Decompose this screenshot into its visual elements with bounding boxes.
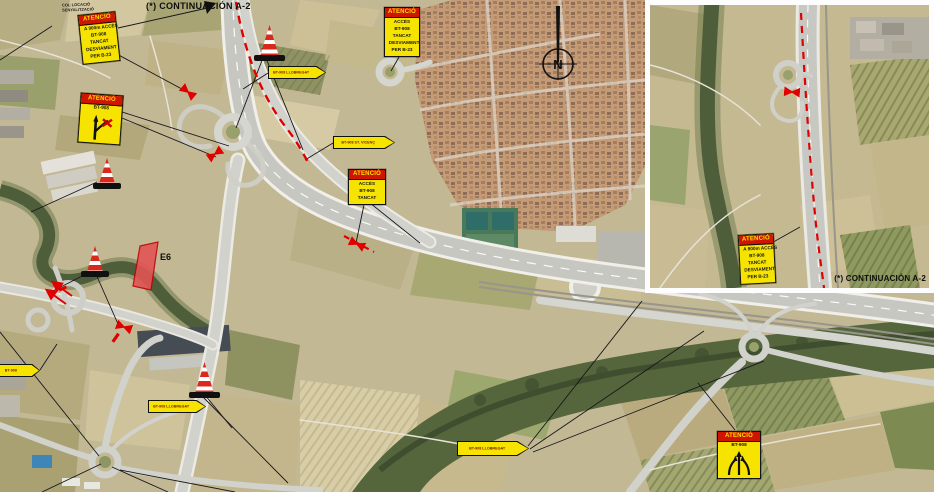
work-zone-e6-label: E6 xyxy=(160,252,171,262)
continuation-label-main: (*) CONTINUACIÓN A-2 xyxy=(146,1,251,11)
attention-header: ATENCIÓ xyxy=(385,8,419,18)
sign-line: DESVIAMENT xyxy=(389,41,416,46)
inset-canvas xyxy=(650,5,929,288)
traffic-cone xyxy=(257,25,282,58)
sign-line: A 900m ACCÉS xyxy=(743,246,770,253)
sign-line: TANCAT xyxy=(744,260,771,267)
sign-line: PER B-23 xyxy=(745,274,772,281)
arrow-sign-text: BT-908 xyxy=(4,369,16,373)
traffic-cone xyxy=(96,158,118,186)
sign-road-ref: BT-908 xyxy=(723,443,756,448)
traffic-cone xyxy=(192,362,217,395)
attention-sign-access-closed-center: ATENCIÓ ACCÉS BT-908 TANCAT xyxy=(348,169,386,205)
traffic-cone xyxy=(84,246,106,274)
north-compass: N xyxy=(536,4,580,90)
sign-line: TANCAT xyxy=(389,34,416,39)
arrow-sign-text: BT-908 LLOBREGAT xyxy=(273,71,309,75)
direction-arrow-sign-llobregat-2: BT-908 LLOBREGAT xyxy=(457,441,529,456)
arrow-sign-text: BT-908 ST. VICENÇ xyxy=(342,141,376,145)
lane-merge-diagram xyxy=(723,450,755,476)
attention-sign-access-closed-topleft: ATENCIÓ A 900m ACCÉS BT-908 TANCAT DESVI… xyxy=(77,11,120,65)
inset-map: ATENCIÓ A 900m ACCÉS BT-908 TANCAT DESVI… xyxy=(645,0,934,293)
direction-arrow-sign-edge: BT-908 xyxy=(0,364,40,377)
compass-n: N xyxy=(553,57,562,72)
sign-line: BT-908 xyxy=(743,253,770,260)
attention-sign-access-closed-inset: ATENCIÓ A 900m ACCÉS BT-908 TANCAT DESVI… xyxy=(738,233,777,285)
sign-line: ACCÉS xyxy=(389,20,416,25)
attention-sign-lane-merge: ATENCIÓ BT-908 xyxy=(717,431,761,479)
attention-header: ATENCIÓ xyxy=(349,170,385,180)
direction-arrow-sign-llobregat-3: BT-908 LLOBREGAT xyxy=(148,400,206,413)
sign-line: BT-908 xyxy=(353,189,381,194)
roadworks-signage-plan: (*) CONTINUACIÓN A-2 COL·LOCACIÓ SENYALI… xyxy=(0,0,934,492)
sign-line: PER B-23 xyxy=(87,52,115,60)
direction-arrow-sign-llobregat-1: BT-908 LLOBREGAT xyxy=(268,66,326,79)
arrow-sign-text: BT-908 LLOBREGAT xyxy=(469,447,505,451)
sign-line: DESVIAMENT xyxy=(744,267,771,274)
attention-sign-access-closed-topcenter: ATENCIÓ ACCÉS BT-908 TANCAT DESVIAMENT P… xyxy=(384,7,420,57)
arrow-sign-text: BT-908 LLOBREGAT xyxy=(153,405,189,409)
sign-line: PER B-23 xyxy=(389,48,416,53)
continuation-label-inset: (*) CONTINUACIÓN A-2 xyxy=(834,274,926,283)
branch-closed-diagram xyxy=(84,112,116,142)
attention-header: ATENCIÓ xyxy=(718,432,760,442)
attention-sign-branch-closed: ATENCIÓ BT-908 xyxy=(77,93,123,146)
sign-line: ACCÉS xyxy=(353,182,381,187)
sign-line: TANCAT xyxy=(353,196,381,201)
direction-arrow-sign-st-vicenc: BT-908 ST. VICENÇ xyxy=(333,136,395,149)
corner-note: COL·LOCACIÓ SENYALITZACIÓ xyxy=(62,1,94,12)
sign-line: BT-908 xyxy=(389,27,416,32)
